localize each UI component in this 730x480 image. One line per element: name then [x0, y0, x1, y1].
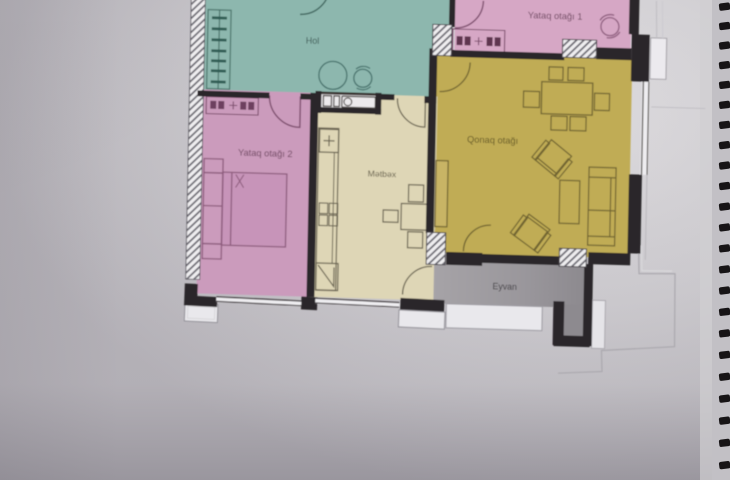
svg-text:Hol: Hol — [306, 36, 320, 46]
svg-text:Yataq otağı 2: Yataq otağı 2 — [238, 148, 293, 160]
svg-text:Mətbəx: Mətbəx — [368, 168, 397, 179]
svg-text:Eyvan: Eyvan — [492, 281, 517, 292]
svg-text:Yataq otağı 1: Yataq otağı 1 — [528, 10, 583, 22]
svg-text:Qonaq otağı: Qonaq otağı — [467, 134, 518, 146]
